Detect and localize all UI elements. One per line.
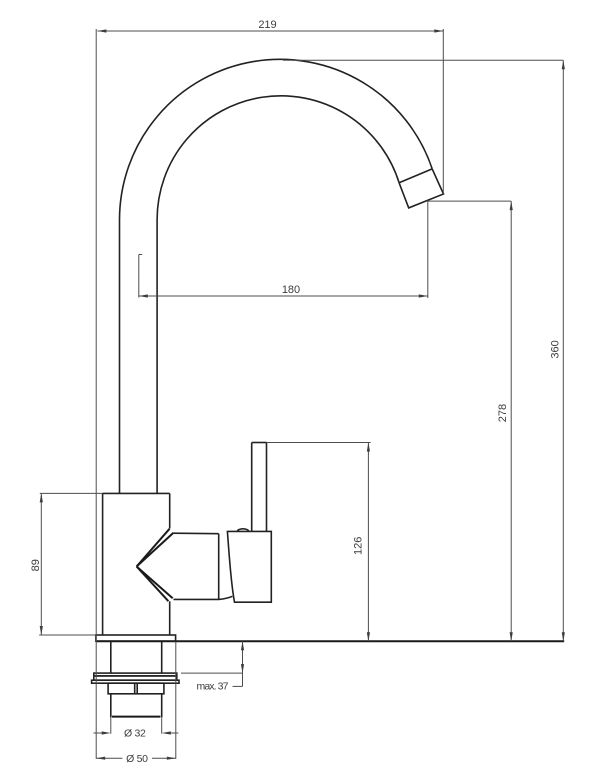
- svg-text:max. 37: max. 37: [197, 680, 229, 692]
- svg-text:Ø 32: Ø 32: [124, 727, 146, 739]
- svg-text:126: 126: [352, 537, 364, 555]
- svg-text:180: 180: [282, 284, 300, 296]
- svg-text:Ø 50: Ø 50: [126, 753, 148, 765]
- svg-text:278: 278: [497, 404, 509, 422]
- svg-text:360: 360: [549, 340, 561, 358]
- svg-text:219: 219: [258, 19, 276, 31]
- svg-text:89: 89: [30, 559, 42, 571]
